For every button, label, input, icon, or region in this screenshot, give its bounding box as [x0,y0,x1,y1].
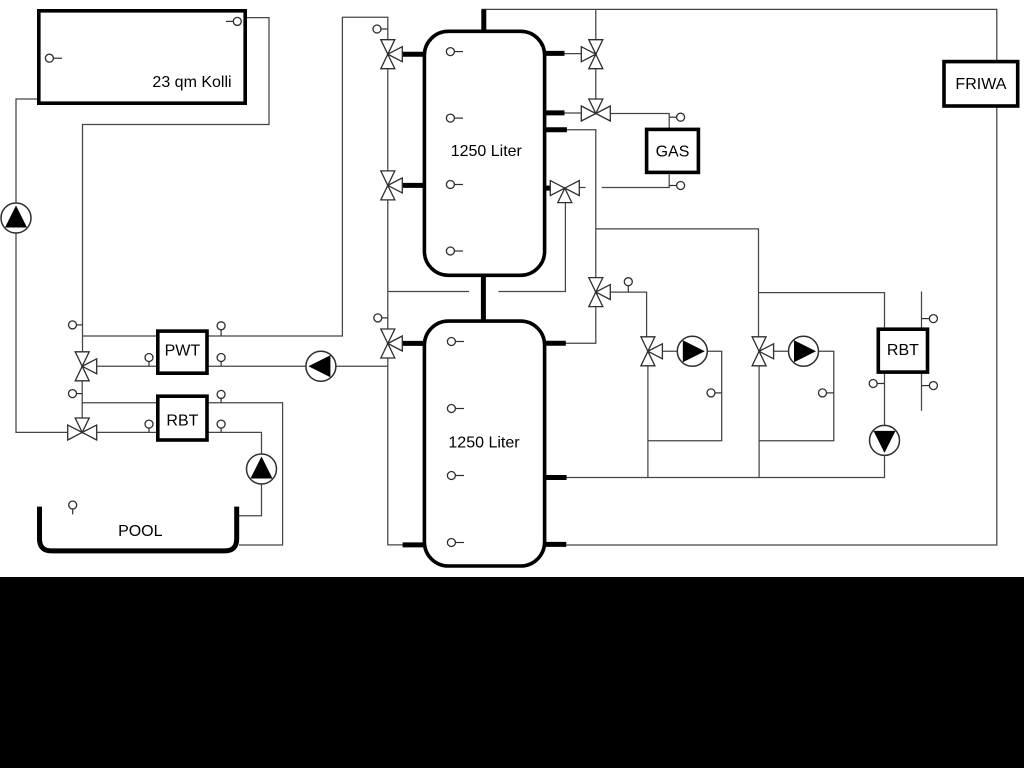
svg-text:1250 Liter: 1250 Liter [451,143,523,160]
svg-text:PWT: PWT [165,343,201,360]
svg-text:FRIWA: FRIWA [955,76,1006,93]
svg-text:POOL: POOL [118,523,163,540]
svg-text:RBT: RBT [887,342,919,359]
svg-text:GAS: GAS [656,144,690,161]
svg-text:23 qm Kolli: 23 qm Kolli [152,74,231,91]
svg-text:RBT: RBT [166,412,198,429]
svg-text:1250 Liter: 1250 Liter [448,434,520,451]
